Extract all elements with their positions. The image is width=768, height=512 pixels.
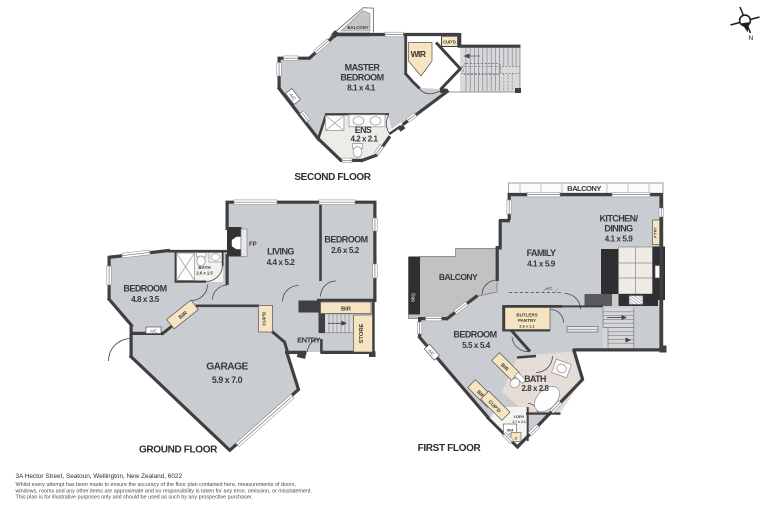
svg-text:FAMILY: FAMILY — [527, 248, 556, 258]
svg-text:A/C: A/C — [545, 286, 552, 291]
svg-text:BALCONY: BALCONY — [439, 272, 478, 282]
svg-text:FP: FP — [249, 242, 257, 248]
svg-text:1.7 x 2.1: 1.7 x 2.1 — [512, 420, 526, 424]
svg-text:A/C: A/C — [150, 328, 157, 333]
svg-text:4.2 x 2.1: 4.2 x 2.1 — [350, 135, 378, 144]
svg-text:WM: WM — [507, 429, 513, 433]
svg-text:5.9 x 7.0: 5.9 x 7.0 — [212, 375, 243, 385]
svg-text:ENTRY: ENTRY — [297, 336, 320, 345]
svg-text:WIR: WIR — [411, 49, 426, 59]
svg-text:Whilst every attempt has been: Whilst every attempt has been made to en… — [16, 482, 297, 488]
svg-text:BEDROOM: BEDROOM — [324, 235, 367, 245]
svg-text:LIVING: LIVING — [267, 247, 294, 257]
svg-text:2.6 x 1.1: 2.6 x 1.1 — [519, 324, 535, 329]
svg-text:P'TRY: P'TRY — [654, 227, 658, 238]
svg-text:CUP'D: CUP'D — [443, 40, 456, 45]
svg-text:8.1 x 4.1: 8.1 x 4.1 — [347, 84, 376, 93]
svg-text:4.4 x 5.2: 4.4 x 5.2 — [267, 258, 296, 267]
svg-text:ENS: ENS — [355, 125, 372, 135]
svg-text:GROUND FLOOR: GROUND FLOOR — [139, 445, 218, 456]
svg-text:windows, rooms and any other i: windows, rooms and any other items are a… — [15, 488, 312, 494]
svg-text:4.1 x 5.9: 4.1 x 5.9 — [527, 260, 556, 269]
svg-text:SECOND FLOOR: SECOND FLOOR — [294, 172, 371, 183]
svg-text:BALCONY: BALCONY — [567, 184, 601, 193]
svg-text:STORE: STORE — [359, 323, 365, 343]
svg-text:C: C — [515, 437, 518, 441]
svg-text:KITCHEN/: KITCHEN/ — [599, 214, 638, 224]
svg-text:4.8 x 3.5: 4.8 x 3.5 — [131, 295, 160, 304]
svg-text:DINING: DINING — [604, 224, 633, 234]
svg-text:BIR: BIR — [341, 307, 352, 313]
svg-text:FIRST FLOOR: FIRST FLOOR — [418, 443, 482, 454]
svg-text:2.6 x 1.5: 2.6 x 1.5 — [196, 271, 213, 276]
svg-text:BUTLERS: BUTLERS — [516, 313, 537, 318]
svg-text:BALCONY: BALCONY — [347, 25, 368, 30]
svg-text:4.1 x 5.9: 4.1 x 5.9 — [605, 235, 634, 244]
svg-text:LDRY: LDRY — [514, 414, 525, 419]
svg-text:2.8 x 2.8: 2.8 x 2.8 — [521, 384, 549, 393]
svg-text:BATH: BATH — [198, 265, 210, 270]
svg-text:N: N — [748, 35, 753, 42]
svg-text:2.6 x 5.2: 2.6 x 5.2 — [331, 246, 360, 255]
svg-text:CUP'D: CUP'D — [262, 311, 267, 326]
svg-text:BEDROOM: BEDROOM — [123, 284, 166, 294]
svg-text:MASTER: MASTER — [345, 63, 381, 73]
svg-text:This plan is for illustrative: This plan is for illustrative purposes o… — [16, 495, 253, 501]
svg-text:BEDROOM: BEDROOM — [340, 73, 383, 83]
svg-text:3A Hector Street, Seatoun, Wel: 3A Hector Street, Seatoun, Wellington, N… — [16, 473, 183, 480]
svg-text:BBQ: BBQ — [411, 292, 416, 302]
svg-text:PANTRY: PANTRY — [518, 318, 536, 323]
svg-text:GARAGE: GARAGE — [206, 362, 248, 373]
svg-text:BEDROOM: BEDROOM — [453, 330, 496, 340]
svg-text:BATH: BATH — [524, 374, 546, 384]
svg-text:5.5 x 5.4: 5.5 x 5.4 — [462, 341, 491, 350]
